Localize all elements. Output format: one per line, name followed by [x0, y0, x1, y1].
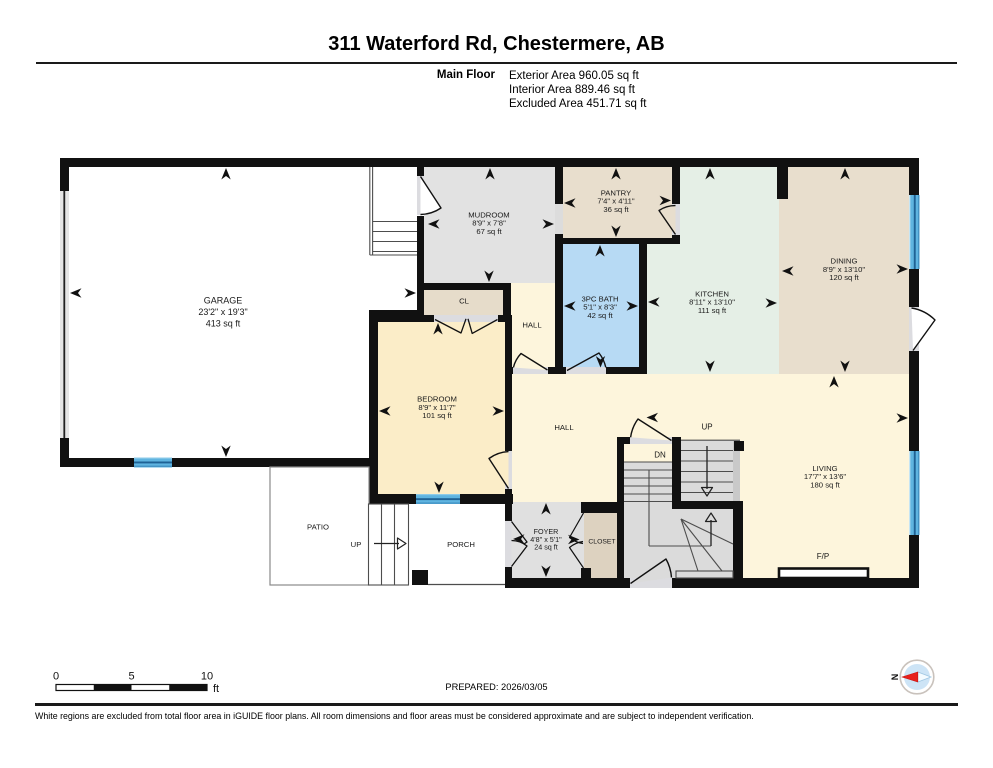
svg-text:N: N	[890, 674, 900, 681]
svg-text:UP: UP	[351, 540, 362, 549]
svg-text:111 sq ft: 111 sq ft	[698, 306, 727, 315]
svg-text:UP: UP	[701, 423, 712, 432]
svg-text:PATIO: PATIO	[307, 522, 329, 531]
svg-text:HALL: HALL	[554, 423, 574, 432]
svg-text:CL: CL	[459, 297, 470, 306]
svg-text:DN: DN	[654, 451, 666, 460]
svg-text:F/P: F/P	[817, 552, 829, 561]
svg-text:PORCH: PORCH	[447, 540, 475, 549]
svg-text:101 sq ft: 101 sq ft	[422, 411, 452, 420]
svg-text:413 sq ft: 413 sq ft	[206, 319, 241, 329]
svg-text:HALL: HALL	[522, 321, 542, 330]
svg-text:67 sq ft: 67 sq ft	[476, 227, 502, 236]
svg-text:GARAGE: GARAGE	[204, 296, 243, 306]
svg-text:23'2" x 19'3": 23'2" x 19'3"	[198, 307, 247, 317]
svg-text:36 sq ft: 36 sq ft	[603, 205, 629, 214]
svg-text:180 sq ft: 180 sq ft	[810, 480, 840, 489]
svg-text:24 sq ft: 24 sq ft	[534, 543, 558, 552]
svg-text:CLOSET: CLOSET	[588, 539, 615, 546]
svg-text:120 sq ft: 120 sq ft	[829, 273, 859, 282]
svg-text:42 sq ft: 42 sq ft	[587, 311, 613, 320]
